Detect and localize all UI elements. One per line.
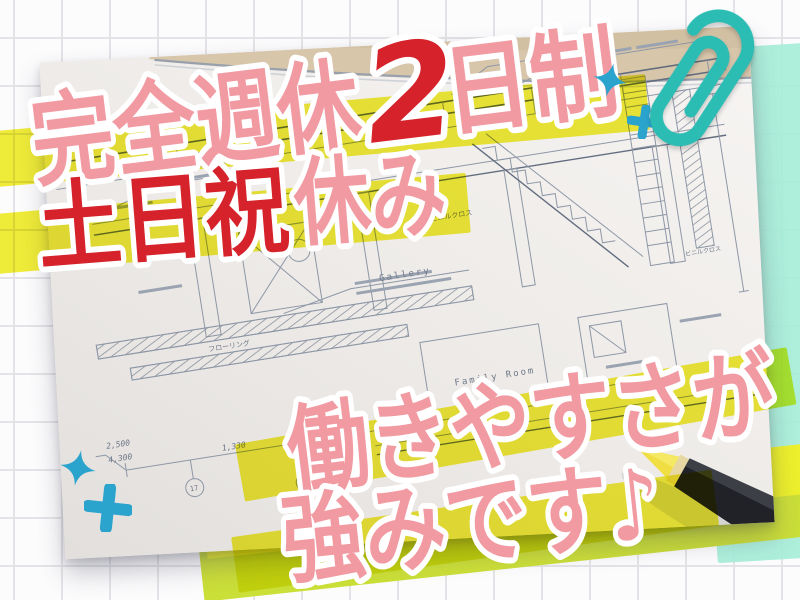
ref-circle-17: 17 bbox=[189, 484, 199, 493]
poster-canvas: Gallery Family Room 2,500 4,300 1,330 17… bbox=[0, 0, 800, 600]
